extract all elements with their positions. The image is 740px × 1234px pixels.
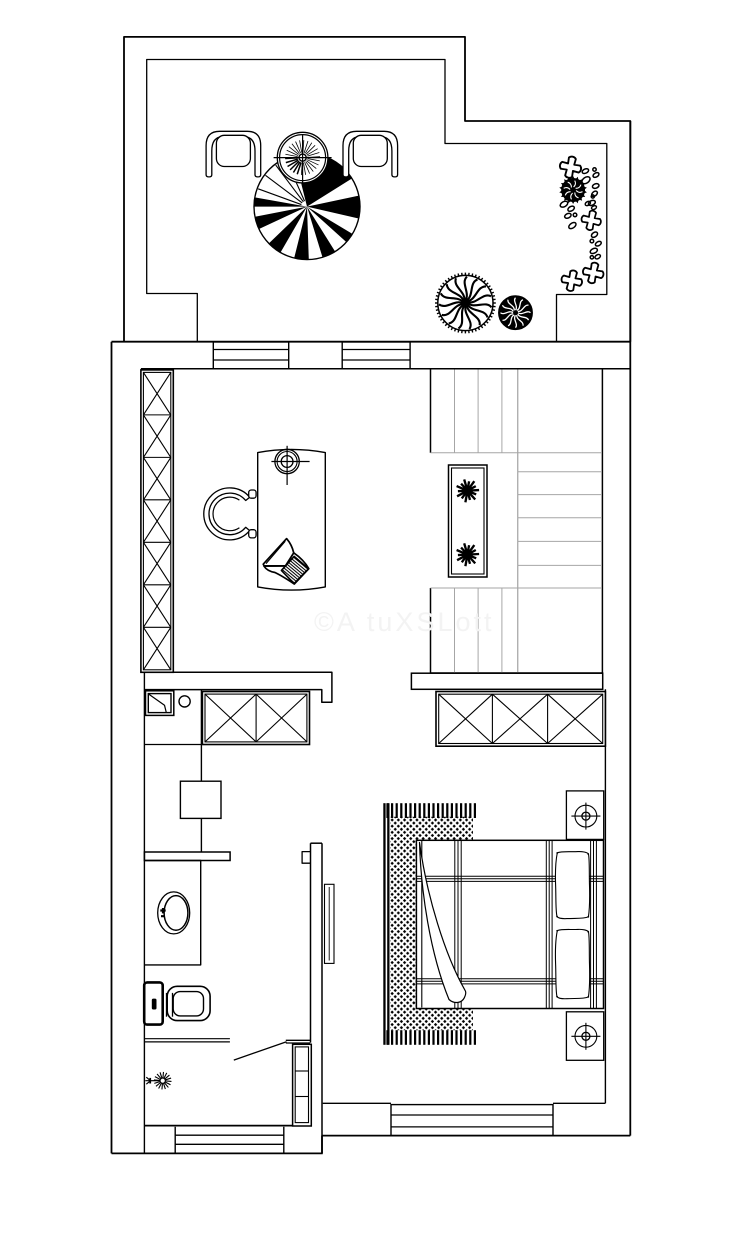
svg-text:©A tuXSLott: ©A tuXSLott [314,607,495,637]
